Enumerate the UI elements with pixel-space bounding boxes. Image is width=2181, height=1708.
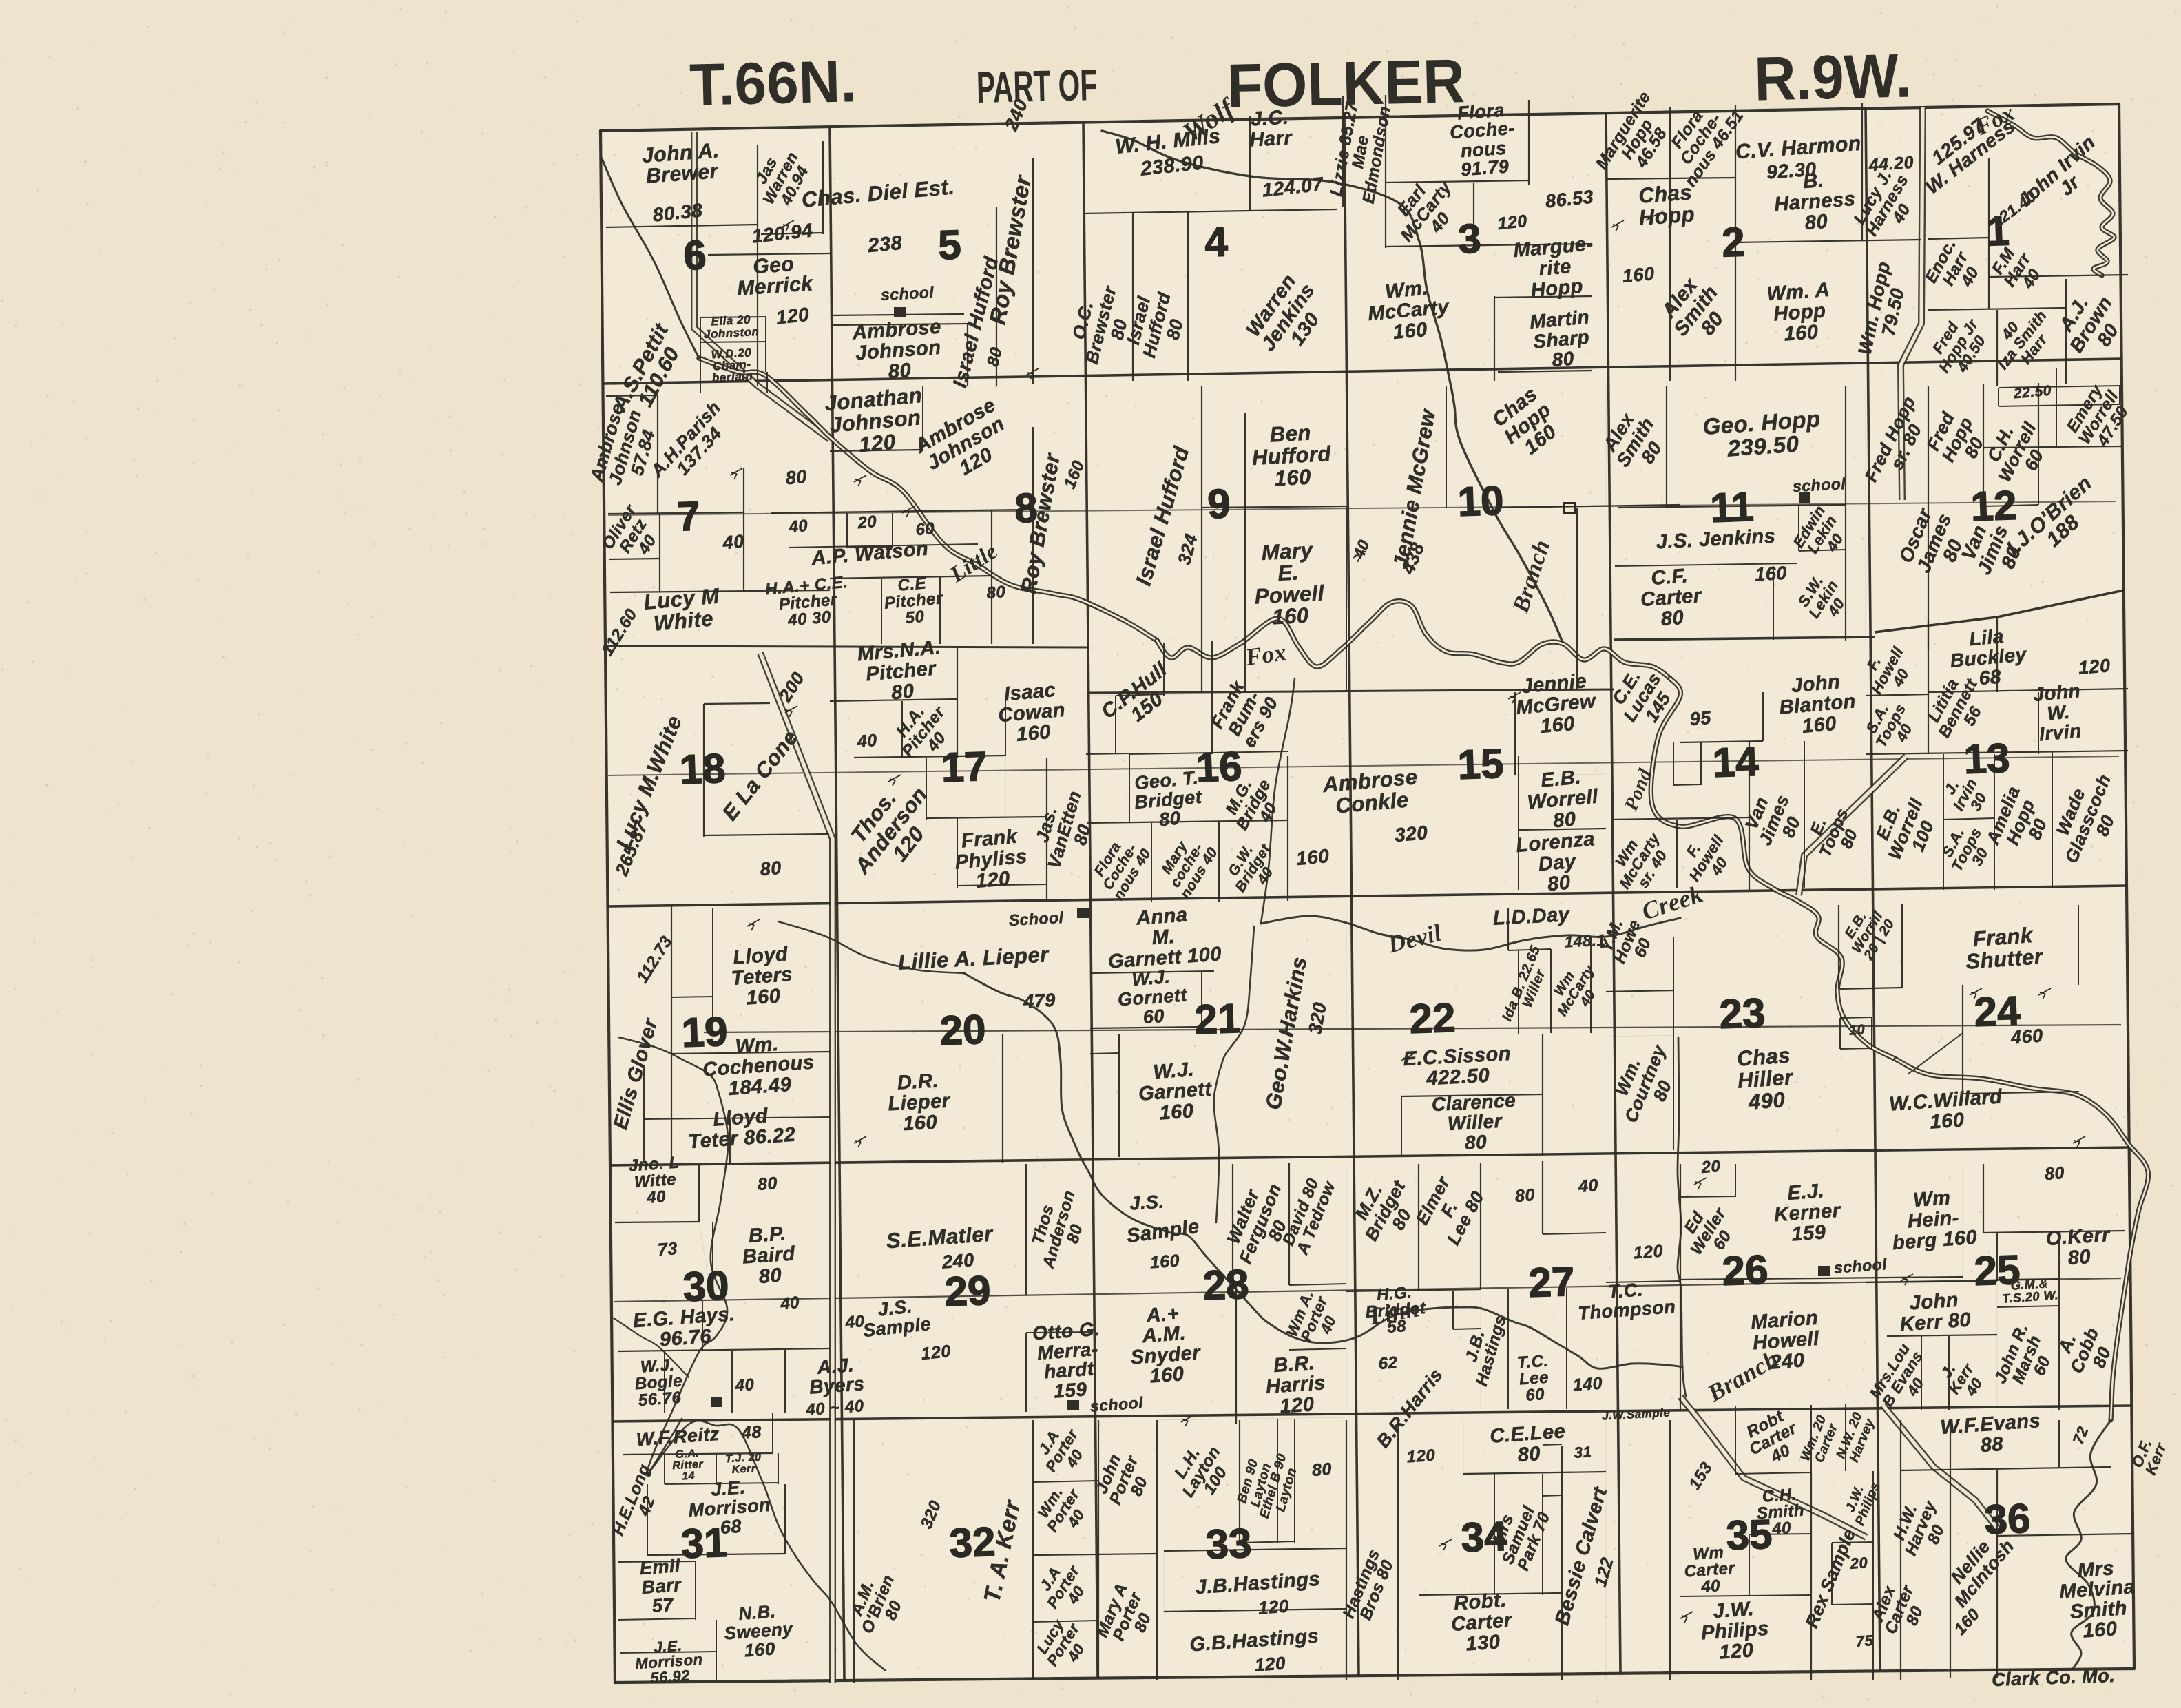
svg-text:2: 2 bbox=[1721, 218, 1746, 265]
svg-text:PART OF: PART OF bbox=[976, 60, 1098, 112]
svg-text:17: 17 bbox=[940, 743, 988, 791]
svg-text:R.9W.: R.9W. bbox=[1753, 41, 1912, 114]
svg-text:11: 11 bbox=[1709, 483, 1755, 531]
svg-text:80: 80 bbox=[757, 1174, 778, 1194]
svg-text:95: 95 bbox=[1689, 707, 1712, 730]
svg-text:12: 12 bbox=[1970, 482, 2017, 530]
svg-text:40: 40 bbox=[787, 517, 808, 537]
svg-text:240: 240 bbox=[941, 1249, 975, 1272]
svg-text:20: 20 bbox=[1700, 1157, 1722, 1177]
svg-text:40: 40 bbox=[734, 1375, 755, 1395]
svg-text:20: 20 bbox=[1849, 1554, 1868, 1572]
svg-text:9: 9 bbox=[1207, 480, 1231, 527]
svg-text:school: school bbox=[1833, 1255, 1888, 1276]
svg-text:10: 10 bbox=[1848, 1022, 1866, 1039]
svg-text:13: 13 bbox=[1963, 735, 2010, 782]
svg-text:23: 23 bbox=[1718, 990, 1766, 1037]
svg-text:7: 7 bbox=[676, 492, 701, 539]
svg-text:19: 19 bbox=[680, 1008, 728, 1056]
svg-text:120: 120 bbox=[920, 1342, 952, 1364]
svg-text:160: 160 bbox=[1622, 263, 1656, 287]
svg-text:44.20: 44.20 bbox=[1868, 153, 1914, 176]
svg-text:320: 320 bbox=[1394, 822, 1429, 846]
svg-text:80: 80 bbox=[2044, 1163, 2065, 1184]
svg-text:28: 28 bbox=[1202, 1261, 1249, 1309]
svg-text:75: 75 bbox=[1855, 1632, 1874, 1650]
svg-text:4: 4 bbox=[1204, 218, 1229, 265]
svg-text:22.50: 22.50 bbox=[2012, 383, 2052, 402]
svg-text:21: 21 bbox=[1193, 995, 1241, 1043]
svg-text:Clark Co. Mo.: Clark Co. Mo. bbox=[1992, 1665, 2116, 1690]
svg-text:School: School bbox=[1008, 908, 1064, 929]
svg-text:29: 29 bbox=[943, 1267, 991, 1315]
svg-text:120: 120 bbox=[775, 304, 810, 329]
svg-text:3: 3 bbox=[1457, 215, 1482, 262]
svg-text:479: 479 bbox=[1022, 990, 1056, 1012]
svg-text:T.66N.: T.66N. bbox=[689, 48, 857, 118]
svg-text:J.C.Harr: J.C.Harr bbox=[1248, 106, 1293, 151]
svg-text:73: 73 bbox=[657, 1239, 678, 1260]
svg-text:27: 27 bbox=[1527, 1258, 1575, 1306]
svg-text:6: 6 bbox=[682, 231, 707, 278]
svg-text:160: 160 bbox=[1149, 1251, 1180, 1273]
svg-text:40: 40 bbox=[721, 531, 745, 554]
svg-text:120: 120 bbox=[1254, 1652, 1286, 1675]
svg-text:120: 120 bbox=[1633, 1242, 1664, 1263]
svg-text:20: 20 bbox=[939, 1006, 986, 1054]
svg-text:10: 10 bbox=[1457, 477, 1504, 525]
svg-text:30: 30 bbox=[682, 1262, 729, 1310]
svg-text:14: 14 bbox=[1711, 738, 1760, 786]
svg-text:120: 120 bbox=[1406, 1446, 1436, 1467]
svg-text:20: 20 bbox=[856, 512, 877, 532]
svg-text:ChasHopp: ChasHopp bbox=[1636, 180, 1695, 230]
svg-text:140: 140 bbox=[1572, 1374, 1603, 1395]
svg-text:AmbroseConkle: AmbroseConkle bbox=[1321, 764, 1420, 819]
svg-text:18: 18 bbox=[678, 745, 726, 793]
svg-text:80: 80 bbox=[985, 583, 1006, 603]
svg-text:80: 80 bbox=[1514, 1185, 1536, 1206]
svg-text:40: 40 bbox=[1577, 1176, 1599, 1196]
svg-text:62: 62 bbox=[1378, 1353, 1399, 1373]
svg-text:460: 460 bbox=[2010, 1025, 2044, 1048]
svg-text:40: 40 bbox=[844, 1312, 866, 1332]
svg-text:33: 33 bbox=[1204, 1520, 1252, 1568]
svg-text:36: 36 bbox=[1983, 1495, 2031, 1543]
svg-text:J.S.: J.S. bbox=[1129, 1191, 1165, 1214]
svg-text:80: 80 bbox=[1311, 1459, 1333, 1480]
svg-text:W.D.20Cham-berlain: W.D.20Cham-berlain bbox=[711, 346, 753, 384]
svg-text:31: 31 bbox=[1574, 1443, 1592, 1461]
svg-text:120: 120 bbox=[1496, 211, 1528, 233]
svg-text:60: 60 bbox=[915, 519, 935, 539]
svg-text:48: 48 bbox=[740, 1422, 762, 1443]
svg-text:15: 15 bbox=[1457, 740, 1504, 788]
svg-text:school: school bbox=[880, 283, 934, 304]
svg-text:5: 5 bbox=[937, 221, 962, 268]
svg-text:L.D.Day: L.D.Day bbox=[1492, 904, 1571, 930]
svg-text:238: 238 bbox=[866, 232, 904, 257]
svg-text:Lucy MWhite: Lucy MWhite bbox=[643, 583, 722, 636]
svg-text:80: 80 bbox=[759, 857, 782, 880]
svg-text:school: school bbox=[1089, 1393, 1144, 1415]
svg-text:80: 80 bbox=[784, 466, 808, 489]
svg-text:120: 120 bbox=[2078, 655, 2111, 678]
svg-text:22: 22 bbox=[1408, 994, 1456, 1042]
svg-text:school: school bbox=[1792, 475, 1846, 495]
svg-text:160: 160 bbox=[1295, 845, 1330, 869]
svg-text:40: 40 bbox=[856, 731, 878, 751]
svg-text:26: 26 bbox=[1721, 1247, 1768, 1294]
svg-text:120: 120 bbox=[1258, 1595, 1290, 1618]
svg-text:40: 40 bbox=[779, 1293, 801, 1314]
svg-text:160: 160 bbox=[1754, 563, 1787, 585]
svg-text:John A.Brewer: John A.Brewer bbox=[641, 139, 722, 188]
